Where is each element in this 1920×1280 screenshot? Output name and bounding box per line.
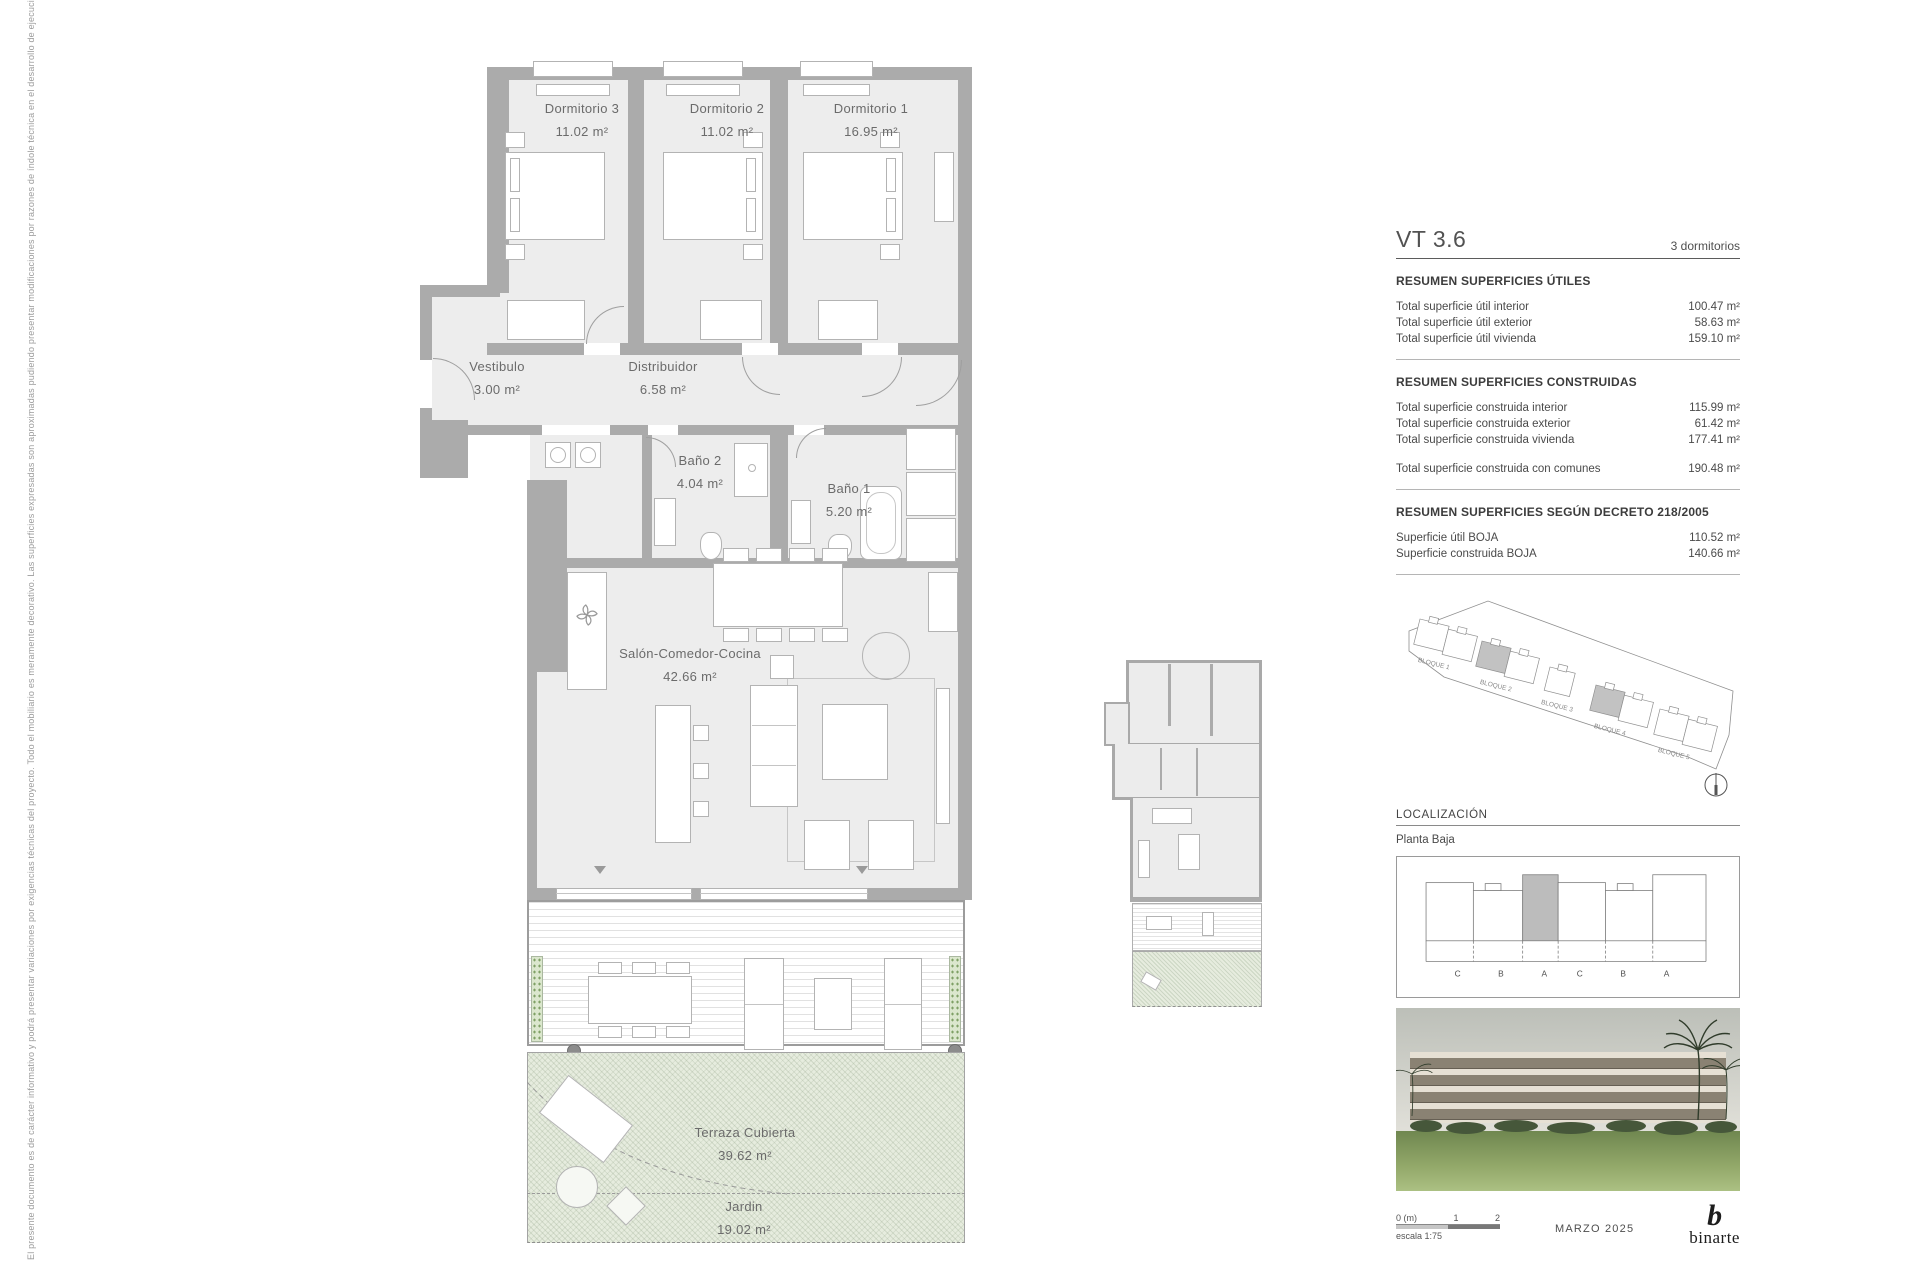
unit-letter: B bbox=[1620, 968, 1626, 978]
logo-wordmark: binarte bbox=[1689, 1228, 1740, 1248]
summary-label: Total superficie útil exterior bbox=[1396, 315, 1532, 331]
kitchen-island bbox=[655, 705, 691, 843]
photo-vegetation bbox=[1396, 1008, 1740, 1191]
scale-segment bbox=[1448, 1225, 1500, 1229]
window bbox=[800, 61, 873, 77]
summary-value: 140.66 m² bbox=[1688, 546, 1740, 562]
binarte-logo: b binarte bbox=[1689, 1205, 1740, 1248]
unit-letter: C bbox=[1455, 968, 1461, 978]
door-marker-icon bbox=[594, 866, 606, 874]
mini-lounge bbox=[1202, 912, 1214, 936]
unit-letter: A bbox=[1664, 968, 1670, 978]
window bbox=[533, 61, 613, 77]
closet bbox=[906, 472, 956, 516]
planter bbox=[949, 956, 961, 1042]
planter bbox=[531, 956, 543, 1042]
room-name: Dormitorio 3 bbox=[545, 98, 619, 121]
summary-row: Superficie útil BOJA 110.52 m² bbox=[1396, 530, 1740, 546]
room-name: Salón-Comedor-Cocina bbox=[619, 643, 761, 666]
tv-unit bbox=[936, 688, 950, 824]
wall bbox=[420, 285, 500, 297]
window bbox=[663, 61, 743, 77]
scale-segment bbox=[1396, 1225, 1448, 1229]
mini-mid-band bbox=[1112, 744, 1262, 800]
wall bbox=[420, 420, 468, 478]
stool bbox=[693, 801, 709, 817]
extractor-fan-icon bbox=[572, 600, 602, 630]
toilet bbox=[700, 532, 722, 560]
outdoor-chair bbox=[598, 1026, 622, 1038]
outdoor-chair bbox=[632, 1026, 656, 1038]
closet bbox=[906, 518, 956, 562]
room-label: Jardin 19.02 m² bbox=[717, 1196, 771, 1242]
summary-value: 110.52 m² bbox=[1689, 530, 1740, 546]
mini-wall bbox=[1160, 748, 1162, 790]
wall bbox=[628, 80, 644, 343]
door-gap bbox=[862, 343, 898, 355]
site-block-3: BLOQUE 3 bbox=[1540, 662, 1583, 714]
room-area: 11.02 m² bbox=[690, 121, 764, 144]
mini-wall bbox=[1210, 664, 1213, 736]
divider bbox=[1396, 574, 1740, 575]
wall bbox=[420, 285, 432, 360]
room-area: 19.02 m² bbox=[717, 1219, 771, 1242]
pillow bbox=[886, 198, 896, 232]
dining-table bbox=[713, 563, 843, 627]
closet bbox=[934, 152, 954, 222]
room-label: Dormitorio 2 11.02 m² bbox=[690, 98, 764, 144]
spacer bbox=[1396, 448, 1740, 461]
highlighted-unit bbox=[1523, 875, 1558, 941]
door-gap bbox=[584, 343, 620, 355]
room-label: Vestibulo 3.00 m² bbox=[469, 356, 524, 402]
wall bbox=[487, 343, 972, 355]
mini-outdoor-table bbox=[1146, 916, 1172, 930]
site-block-2: BLOQUE 2 bbox=[1471, 636, 1541, 698]
armchair bbox=[868, 820, 914, 870]
room-label: Dormitorio 3 11.02 m² bbox=[545, 98, 619, 144]
window-sill bbox=[803, 84, 870, 96]
armchair bbox=[804, 820, 850, 870]
door-marker-icon bbox=[856, 866, 868, 874]
room-label: Distribuidor 6.58 m² bbox=[628, 356, 697, 402]
summary-row: Total superficie construida vivienda 177… bbox=[1396, 432, 1740, 448]
sliding-door-line bbox=[556, 893, 692, 894]
sink bbox=[791, 500, 811, 544]
fridge bbox=[928, 572, 958, 632]
site-block-5: BLOQUE 5 bbox=[1649, 704, 1719, 766]
pillow bbox=[746, 198, 756, 232]
disclaimer-text: El presente documento es de carácter inf… bbox=[26, 20, 38, 1260]
building-render-photo bbox=[1396, 1008, 1740, 1191]
sliding-door bbox=[700, 888, 868, 900]
sink bbox=[654, 498, 676, 546]
mini-island bbox=[1138, 840, 1150, 878]
room-label: Baño 2 4.04 m² bbox=[677, 450, 723, 496]
room-label: Baño 1 5.20 m² bbox=[826, 478, 872, 524]
washer-drum-icon bbox=[550, 447, 566, 463]
room-area: 16.95 m² bbox=[834, 121, 908, 144]
lounge-line bbox=[745, 1004, 783, 1005]
section-title-decreto: RESUMEN SUPERFICIES SEGÚN DECRETO 218/20… bbox=[1396, 505, 1740, 519]
wall bbox=[958, 565, 972, 900]
scale-tick-zero: 0 (m) bbox=[1396, 1213, 1417, 1223]
closet bbox=[906, 428, 956, 470]
lounge-line bbox=[885, 1004, 921, 1005]
chair bbox=[756, 548, 782, 562]
chair bbox=[789, 548, 815, 562]
summary-value: 58.63 m² bbox=[1695, 315, 1740, 331]
wardrobe bbox=[507, 300, 585, 340]
summary-value: 115.99 m² bbox=[1689, 400, 1740, 416]
mini-wall bbox=[1168, 664, 1171, 726]
summary-label: Total superficie construida interior bbox=[1396, 400, 1567, 416]
nightstand bbox=[505, 244, 525, 260]
mini-entry bbox=[1104, 702, 1130, 746]
wall bbox=[958, 67, 972, 367]
block-label: BLOQUE 4 bbox=[1593, 723, 1627, 738]
block-label: BLOQUE 5 bbox=[1657, 747, 1691, 762]
mini-table bbox=[1152, 808, 1192, 824]
chair bbox=[789, 628, 815, 642]
stool bbox=[693, 763, 709, 779]
block-label: BLOQUE 3 bbox=[1540, 699, 1574, 714]
sofa bbox=[750, 685, 798, 807]
kitchen-counter bbox=[567, 572, 607, 690]
summary-label: Superficie construida BOJA bbox=[1396, 546, 1537, 562]
nightstand bbox=[880, 244, 900, 260]
room-area: 42.66 m² bbox=[619, 666, 761, 689]
side-table bbox=[770, 655, 794, 679]
window-sill bbox=[666, 84, 740, 96]
wall bbox=[958, 357, 972, 565]
chair bbox=[822, 628, 848, 642]
sheet-footer: 0 (m) 1 2 escala 1:75 MARZO 2025 b binar… bbox=[1396, 1213, 1740, 1248]
pillow bbox=[746, 158, 756, 192]
chair bbox=[822, 548, 848, 562]
unit-code: VT 3.6 bbox=[1396, 226, 1466, 253]
bed bbox=[505, 152, 605, 240]
summary-label: Total superficie útil vivienda bbox=[1396, 331, 1536, 347]
room-label: Salón-Comedor-Cocina 42.66 m² bbox=[619, 643, 761, 689]
nightstand bbox=[505, 132, 525, 148]
coffee-table bbox=[822, 704, 888, 780]
room-area: 5.20 m² bbox=[826, 501, 872, 524]
room-name: Distribuidor bbox=[628, 356, 697, 379]
scale-bar: 0 (m) 1 2 escala 1:75 bbox=[1396, 1213, 1500, 1241]
sliding-door-line bbox=[700, 893, 868, 894]
summary-row: Total superficie construida interior 115… bbox=[1396, 400, 1740, 416]
wall bbox=[527, 672, 537, 900]
localizacion-title: LOCALIZACIÓN bbox=[1396, 809, 1740, 826]
summary-row-total: Total superficie construida con comunes … bbox=[1396, 461, 1740, 477]
pillow bbox=[886, 158, 896, 192]
room-label: Dormitorio 1 16.95 m² bbox=[834, 98, 908, 144]
summary-value: 159.10 m² bbox=[1688, 331, 1740, 347]
chair bbox=[756, 628, 782, 642]
summary-row: Total superficie útil exterior 58.63 m² bbox=[1396, 315, 1740, 331]
room-name: Baño 1 bbox=[826, 478, 872, 501]
shower-drain-icon bbox=[748, 464, 756, 472]
scale-text: escala 1:75 bbox=[1396, 1231, 1500, 1241]
building-key-svg: C B A C B A bbox=[1397, 857, 1739, 995]
summary-row: Total superficie útil interior 100.47 m² bbox=[1396, 299, 1740, 315]
summary-label: Superficie útil BOJA bbox=[1396, 530, 1498, 546]
site-block-4: BLOQUE 4 bbox=[1585, 680, 1655, 742]
unit-type: 3 dormitorios bbox=[1671, 239, 1740, 253]
stool bbox=[693, 725, 709, 741]
room-area: 11.02 m² bbox=[545, 121, 619, 144]
summary-label: Total superficie útil interior bbox=[1396, 299, 1529, 315]
door-gap bbox=[742, 343, 778, 355]
pillow bbox=[510, 158, 520, 192]
wall bbox=[527, 480, 567, 672]
logo-mark-icon: b bbox=[1689, 1205, 1740, 1228]
palm-tree-icon bbox=[1396, 1020, 1740, 1120]
summary-value: 61.42 m² bbox=[1695, 416, 1740, 432]
section-title-construidas: RESUMEN SUPERFICIES CONSTRUIDAS bbox=[1396, 375, 1740, 389]
outdoor-chair bbox=[666, 1026, 690, 1038]
site-plan: BLOQUE 1 BLOQUE 2 BLOQUE 3 BLOQUE 4 bbox=[1396, 585, 1740, 807]
summary-label: Total superficie construida con comunes bbox=[1396, 461, 1601, 477]
mini-facade bbox=[1130, 898, 1262, 902]
summary-value: 190.48 m² bbox=[1688, 461, 1740, 477]
unit-letter: C bbox=[1577, 968, 1583, 978]
summary-value: 177.41 m² bbox=[1688, 432, 1740, 448]
section-title-utiles: RESUMEN SUPERFICIES ÚTILES bbox=[1396, 274, 1740, 288]
info-panel: VT 3.6 3 dormitorios RESUMEN SUPERFICIES… bbox=[1396, 226, 1740, 1248]
garden-table bbox=[556, 1166, 598, 1208]
round-table bbox=[862, 632, 910, 680]
summary-label: Total superficie construida exterior bbox=[1396, 416, 1571, 432]
unit-letter: A bbox=[1542, 968, 1548, 978]
mini-wall bbox=[1196, 748, 1198, 796]
room-name: Terraza Cubierta bbox=[695, 1122, 796, 1145]
room-area: 3.00 m² bbox=[469, 379, 524, 402]
door-gap bbox=[648, 425, 678, 435]
divider bbox=[1396, 489, 1740, 490]
wardrobe bbox=[700, 300, 762, 340]
window-sill bbox=[536, 84, 610, 96]
nightstand bbox=[743, 244, 763, 260]
room-name: Vestibulo bbox=[469, 356, 524, 379]
room-name: Dormitorio 2 bbox=[690, 98, 764, 121]
summary-row: Total superficie construida exterior 61.… bbox=[1396, 416, 1740, 432]
pillow bbox=[510, 198, 520, 232]
date-label: MARZO 2025 bbox=[1555, 1223, 1634, 1235]
room-area: 4.04 m² bbox=[677, 473, 723, 496]
room-label: Terraza Cubierta 39.62 m² bbox=[695, 1122, 796, 1168]
wall bbox=[770, 425, 788, 565]
outdoor-side-table bbox=[814, 978, 852, 1030]
summary-value: 100.47 m² bbox=[1688, 299, 1740, 315]
washer-drum-icon bbox=[580, 447, 596, 463]
north-arrow-icon bbox=[1705, 773, 1727, 796]
scale-tick-two: 2 bbox=[1495, 1213, 1500, 1223]
scale-ticks: 0 (m) 1 2 bbox=[1396, 1213, 1500, 1223]
summary-row: Total superficie útil vivienda 159.10 m² bbox=[1396, 331, 1740, 347]
chair bbox=[723, 548, 749, 562]
block-label: BLOQUE 2 bbox=[1479, 679, 1513, 694]
chair bbox=[723, 628, 749, 642]
localizacion-floor: Planta Baja bbox=[1396, 834, 1740, 846]
wardrobe bbox=[818, 300, 878, 340]
scale-bar-graphic bbox=[1396, 1224, 1500, 1229]
room-name: Dormitorio 1 bbox=[834, 98, 908, 121]
outdoor-chair bbox=[632, 962, 656, 974]
sliding-door bbox=[556, 888, 692, 900]
summary-row: Superficie construida BOJA 140.66 m² bbox=[1396, 546, 1740, 562]
room-name: Baño 2 bbox=[677, 450, 723, 473]
mini-sofa bbox=[1178, 834, 1200, 870]
scale-tick-one: 1 bbox=[1453, 1213, 1458, 1223]
summary-label: Total superficie construida vivienda bbox=[1396, 432, 1574, 448]
unit-header: VT 3.6 3 dormitorios bbox=[1396, 226, 1740, 259]
outdoor-chair bbox=[666, 962, 690, 974]
room-name: Jardin bbox=[717, 1196, 771, 1219]
sofa-cushion-line bbox=[752, 765, 796, 766]
plan-sheet: El presente documento es de carácter inf… bbox=[0, 0, 1920, 1280]
outdoor-chair bbox=[598, 962, 622, 974]
outdoor-table bbox=[588, 976, 692, 1024]
room-area: 6.58 m² bbox=[628, 379, 697, 402]
room-area: 39.62 m² bbox=[695, 1145, 796, 1168]
divider bbox=[1396, 359, 1740, 360]
sofa-cushion-line bbox=[752, 725, 796, 726]
unit-letter: B bbox=[1498, 968, 1504, 978]
wall bbox=[770, 80, 788, 355]
building-key-plan: C B A C B A bbox=[1396, 856, 1740, 998]
site-block-1: BLOQUE 1 bbox=[1409, 614, 1479, 676]
mini-bedrooms bbox=[1126, 660, 1262, 746]
